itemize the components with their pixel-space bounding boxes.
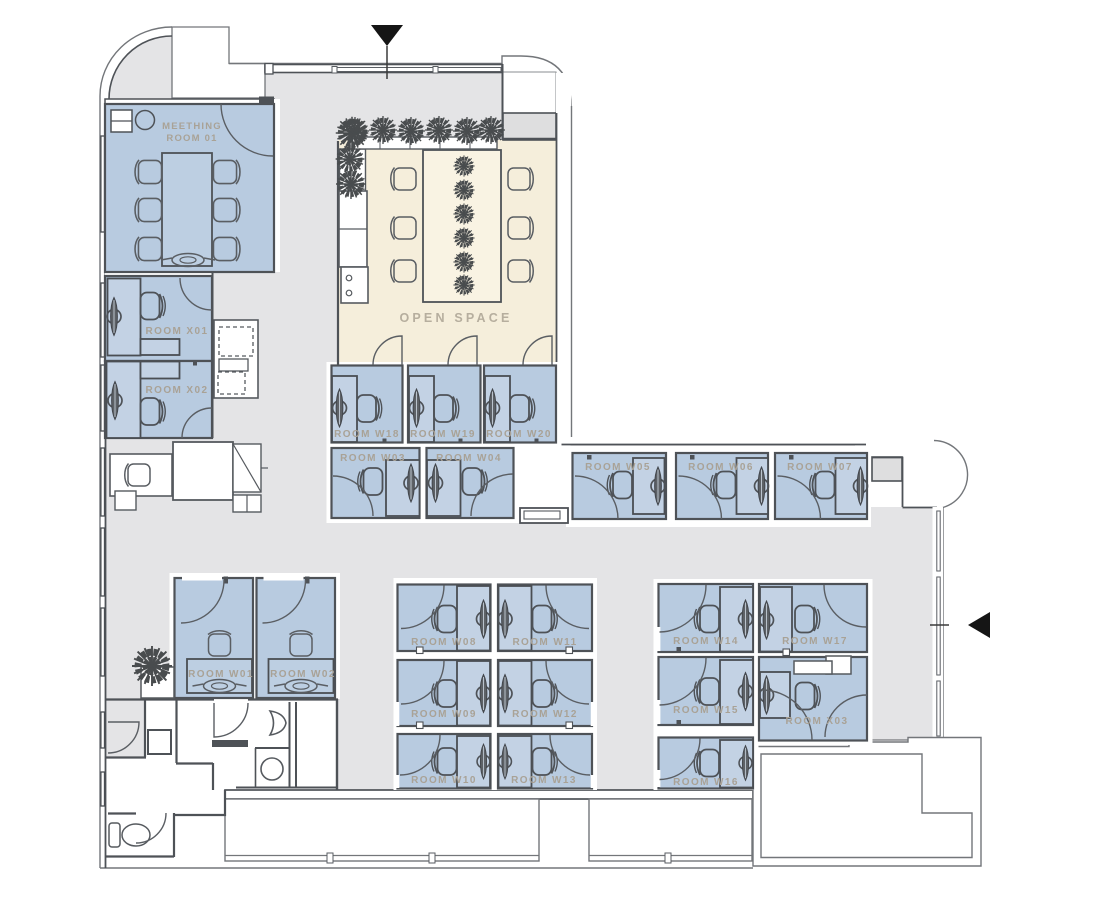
svg-text:ROOM W17: ROOM W17: [782, 636, 848, 647]
svg-text:ROOM W19: ROOM W19: [410, 429, 476, 440]
svg-text:ROOM W10: ROOM W10: [411, 775, 477, 786]
svg-text:ROOM W16: ROOM W16: [673, 777, 739, 788]
svg-text:ROOM W08: ROOM W08: [411, 637, 477, 648]
svg-text:ROOM W05: ROOM W05: [585, 462, 651, 473]
svg-text:ROOM X02: ROOM X02: [146, 385, 209, 396]
svg-text:ROOM W12: ROOM W12: [512, 709, 578, 720]
svg-text:ROOM W14: ROOM W14: [673, 636, 739, 647]
svg-text:ROOM W01: ROOM W01: [188, 669, 254, 680]
svg-text:ROOM W09: ROOM W09: [411, 709, 477, 720]
svg-text:ROOM W15: ROOM W15: [673, 705, 739, 716]
svg-text:ROOM W04: ROOM W04: [436, 453, 502, 464]
svg-text:ROOM X03: ROOM X03: [786, 716, 849, 727]
svg-text:OPEN SPACE: OPEN SPACE: [399, 311, 512, 325]
svg-text:ROOM W07: ROOM W07: [787, 462, 853, 473]
svg-text:ROOM W06: ROOM W06: [688, 462, 754, 473]
svg-text:ROOM W13: ROOM W13: [511, 775, 577, 786]
svg-text:MEETHING: MEETHING: [162, 121, 222, 132]
svg-text:ROOM X01: ROOM X01: [146, 326, 209, 337]
svg-text:ROOM W02: ROOM W02: [270, 669, 336, 680]
svg-text:ROOM W18: ROOM W18: [334, 429, 400, 440]
svg-text:ROOM 01: ROOM 01: [166, 133, 217, 144]
svg-text:ROOM W03: ROOM W03: [340, 453, 406, 464]
svg-text:ROOM W11: ROOM W11: [512, 637, 577, 648]
svg-text:ROOM W20: ROOM W20: [486, 429, 552, 440]
